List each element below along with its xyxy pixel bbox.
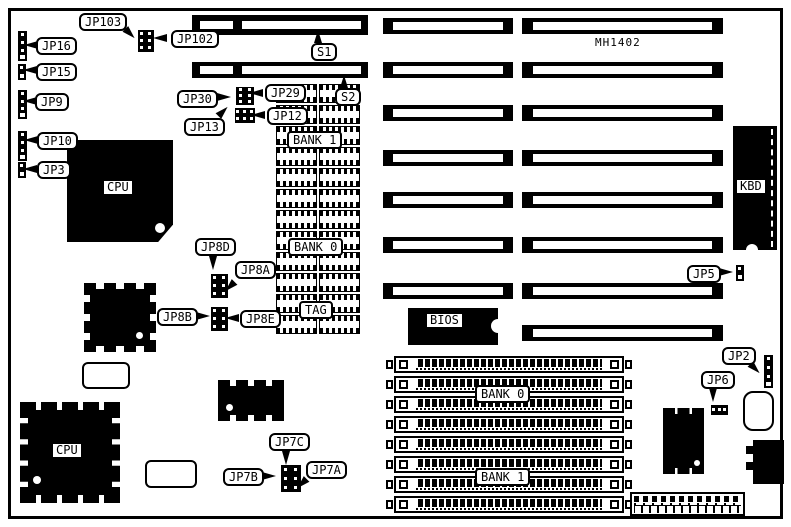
isa-slot-left: [383, 18, 513, 34]
keyboard-din-connector: [753, 440, 784, 484]
simm-edge: [416, 408, 602, 410]
dip-chip: [319, 273, 360, 292]
qfp-chip-center: [218, 380, 284, 421]
slot-opening: [200, 66, 233, 74]
jumper-jp5: [736, 265, 744, 281]
slot-s1: [192, 15, 368, 35]
simm-tab: [625, 420, 632, 429]
pin: [239, 94, 242, 97]
callout-jp8e: JP8E: [240, 310, 281, 328]
simm-tab: [386, 420, 393, 429]
simm-latch: [610, 360, 619, 369]
simm-tab: [386, 500, 393, 509]
label-bank0-simm: BANK 0: [475, 385, 530, 403]
callout-tail: [340, 75, 348, 88]
slot-opening: [533, 196, 712, 204]
simm-latch: [610, 480, 619, 489]
slot-opening: [393, 196, 503, 204]
simm-socket: [394, 436, 624, 453]
simm-tab: [625, 400, 632, 409]
pin: [712, 408, 715, 411]
dip-chip: [276, 189, 317, 208]
slot-opening: [533, 287, 712, 295]
pin: [723, 408, 726, 411]
callout-jp8d: JP8D: [195, 238, 236, 256]
model-number: MH1402: [595, 36, 641, 49]
simm-latch: [399, 500, 408, 509]
simm-contacts: [416, 419, 602, 427]
pin: [213, 292, 216, 295]
callout-tail: [251, 111, 265, 119]
simm-tab: [625, 480, 632, 489]
callout-tail: [23, 66, 37, 74]
pin: [21, 33, 24, 36]
simm-socket: [394, 356, 624, 373]
callout-jp10: JP10: [37, 132, 78, 150]
simm-tab: [386, 480, 393, 489]
label-tag: TAG: [299, 301, 333, 319]
pin: [148, 46, 151, 49]
power-pins-row: [634, 496, 741, 502]
pin: [284, 468, 287, 471]
callout-tail: [24, 136, 38, 144]
callout-tail: [153, 34, 167, 42]
isa-slot-left: [383, 192, 513, 208]
simm-latch: [399, 380, 408, 389]
isa-slot-right: [522, 18, 723, 34]
simm-latch: [399, 360, 408, 369]
label-bank0-dip: BANK 0: [288, 238, 343, 256]
pin: [222, 325, 225, 328]
dip-chip: [319, 147, 360, 166]
isa-slot-right: [522, 237, 723, 253]
label-bios: BIOS: [426, 313, 463, 328]
simm-tab: [625, 380, 632, 389]
pin: [243, 110, 246, 113]
pin: [148, 39, 151, 42]
qfp-chip-mid-left: [84, 283, 156, 352]
pin: [767, 357, 770, 360]
slot-opening: [533, 154, 712, 162]
simm-contacts: [416, 439, 602, 447]
pin: [213, 284, 216, 287]
simm-edge: [416, 448, 602, 450]
callout-jp102: JP102: [171, 30, 219, 48]
dip-chip: [319, 105, 360, 124]
dip-chip: [276, 147, 317, 166]
label-kbd: KBD: [736, 179, 766, 194]
pin: [284, 486, 287, 489]
jumper-block-jp102-jp103: [138, 30, 154, 52]
power-connector: [630, 492, 745, 516]
callout-tail: [719, 268, 733, 276]
callout-tail: [23, 165, 37, 173]
pin: [213, 317, 216, 320]
motherboard-jumper-diagram: MH1402 JP103JP102JP16JP15JP9JP10JP3S1JP: [0, 0, 791, 527]
simm-socket: [394, 496, 624, 513]
callout-jp13: JP13: [184, 118, 225, 136]
simm-contacts: [416, 359, 602, 367]
pin: [738, 267, 741, 270]
callout-tail: [249, 89, 263, 97]
chip-notch: [746, 244, 758, 250]
slot-opening: [393, 287, 503, 295]
pin: [21, 149, 24, 152]
simm-socket: [394, 416, 624, 433]
pin1-dot: [33, 476, 41, 484]
simm-latch: [610, 460, 619, 469]
simm-contacts: [416, 499, 602, 507]
pin: [236, 117, 239, 120]
callout-jp30: JP30: [177, 90, 218, 108]
pin: [243, 117, 246, 120]
dip-chip: [319, 210, 360, 229]
simm-tab: [386, 360, 393, 369]
isa-slot-left: [383, 237, 513, 253]
pin1-dot: [136, 332, 143, 339]
simm-latch: [399, 440, 408, 449]
simm-latch: [610, 440, 619, 449]
open-pin: [19, 154, 26, 160]
callout-tail: [282, 451, 290, 465]
isa-slot-right: [522, 192, 723, 208]
slot-opening: [242, 66, 361, 74]
pin: [718, 408, 721, 411]
pin: [213, 276, 216, 279]
simm-tab: [386, 380, 393, 389]
callout-jp7b: JP7B: [223, 468, 264, 486]
callout-tail: [262, 472, 276, 480]
din-tab: [746, 446, 754, 454]
pin: [248, 100, 251, 103]
pin1-dot: [226, 404, 233, 411]
pin: [140, 46, 143, 49]
dip-chip: [276, 273, 317, 292]
callout-tail: [209, 256, 217, 270]
pin: [239, 100, 242, 103]
slot-opening: [533, 329, 712, 337]
simm-tab: [625, 360, 632, 369]
isa-slot-left: [383, 62, 513, 78]
callout-jp7a: JP7A: [306, 461, 347, 479]
callout-jp8a: JP8A: [235, 261, 276, 279]
simm-edge: [416, 428, 602, 430]
pin: [21, 49, 24, 52]
callout-s2: S2: [335, 88, 361, 106]
callout-jp8b: JP8B: [157, 308, 198, 326]
open-pin: [19, 112, 26, 118]
label-bank1-simm: BANK 1: [475, 468, 530, 486]
isa-slot-right: [522, 325, 723, 341]
pin: [222, 276, 225, 279]
slot-opening: [200, 21, 233, 29]
label-cpu-bottom: CPU: [52, 443, 82, 458]
simm-tab: [386, 460, 393, 469]
simm-edge: [416, 508, 602, 510]
dip-chip: [276, 210, 317, 229]
pin: [213, 309, 216, 312]
callout-jp15: JP15: [36, 63, 77, 81]
chip-notch: [491, 319, 498, 333]
pin: [284, 477, 287, 480]
simm-latch: [399, 460, 408, 469]
dip-chip: [276, 168, 317, 187]
simm-latch: [399, 480, 408, 489]
pin: [140, 32, 143, 35]
isa-slot-left: [383, 105, 513, 121]
callout-jp103: JP103: [79, 13, 127, 31]
simm-tab: [386, 400, 393, 409]
pin-header-jp2: [764, 355, 773, 388]
isa-slot-right: [522, 150, 723, 166]
oscillator-socket-1: [82, 362, 130, 389]
callout-tail: [217, 93, 231, 101]
slot-opening: [393, 66, 503, 74]
simm-edge: [416, 368, 602, 370]
pin1-dot: [694, 460, 700, 466]
slot-opening: [533, 66, 712, 74]
label-bank1-dip: BANK 1: [287, 131, 342, 149]
callout-jp7c: JP7C: [269, 433, 310, 451]
pin: [767, 375, 770, 378]
dip-chip: [319, 168, 360, 187]
simm-latch: [610, 400, 619, 409]
open-pin: [765, 381, 772, 387]
simm-tab: [386, 440, 393, 449]
chip-stripe: [771, 129, 773, 247]
pin: [294, 468, 297, 471]
callout-tail: [314, 30, 322, 43]
simm-latch: [610, 500, 619, 509]
callout-jp16: JP16: [36, 37, 77, 55]
slot-opening: [393, 109, 503, 117]
callout-tail: [196, 312, 210, 320]
slot-opening: [533, 241, 712, 249]
callout-jp12: JP12: [267, 107, 308, 125]
pin: [140, 39, 143, 42]
pin: [222, 309, 225, 312]
simm-contacts: [416, 459, 602, 467]
slot-opening: [533, 109, 712, 117]
isa-slot-right: [522, 62, 723, 78]
slot-opening: [393, 154, 503, 162]
pin: [213, 325, 216, 328]
simm-latch: [399, 420, 408, 429]
simm-latch: [610, 380, 619, 389]
dip-chip: [319, 189, 360, 208]
callout-jp2: JP2: [722, 347, 756, 365]
simm-edge: [416, 488, 602, 490]
callout-s1: S1: [311, 43, 337, 61]
slot-opening: [242, 21, 361, 29]
slot-opening: [393, 22, 503, 30]
callout-jp9: JP9: [35, 93, 69, 111]
power-holes-row: [634, 505, 741, 513]
open-pin: [19, 54, 26, 60]
pin: [767, 366, 770, 369]
pin: [294, 477, 297, 480]
simm-latch: [399, 400, 408, 409]
isa-slot-right: [522, 283, 723, 299]
din-tab: [746, 462, 754, 470]
callout-jp6: JP6: [701, 371, 735, 389]
pin: [236, 110, 239, 113]
isa-slot-left: [383, 150, 513, 166]
slot-opening: [393, 241, 503, 249]
pin: [21, 92, 24, 95]
callout-tail: [225, 314, 239, 322]
simm-tab: [625, 440, 632, 449]
callout-jp5: JP5: [687, 265, 721, 283]
oscillator-socket-2: [145, 460, 197, 488]
pin: [148, 32, 151, 35]
label-cpu-top: CPU: [103, 180, 133, 195]
callout-jp29: JP29: [265, 84, 306, 102]
open-pin: [737, 274, 743, 280]
keyboard-controller-chip: [663, 408, 704, 474]
pin1-dot: [155, 223, 165, 233]
pin: [222, 292, 225, 295]
slot-opening: [533, 22, 712, 30]
callout-tail: [709, 388, 717, 402]
pin: [239, 88, 242, 91]
battery: [743, 391, 774, 431]
callout-jp3: JP3: [37, 161, 71, 179]
simm-tab: [625, 460, 632, 469]
simm-latch: [610, 420, 619, 429]
isa-slot-left: [383, 283, 513, 299]
jumper-block-jp6: [711, 405, 728, 415]
isa-slot-right: [522, 105, 723, 121]
pin: [21, 107, 24, 110]
